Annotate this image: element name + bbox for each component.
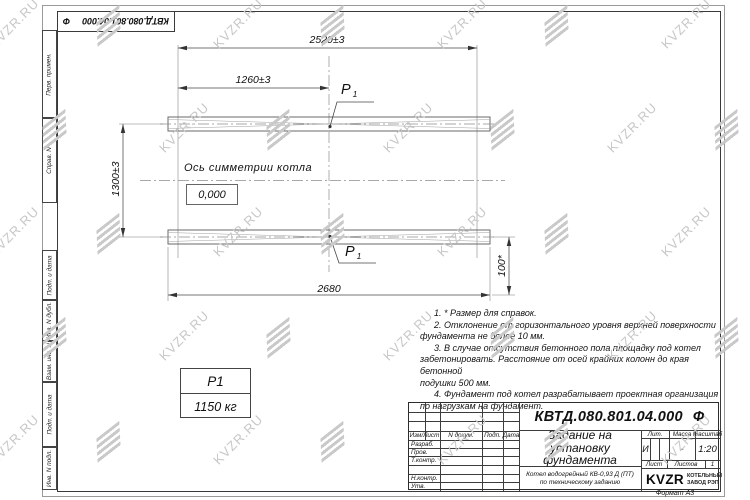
- dim-2520: 2520±3: [287, 34, 367, 46]
- tb-row-tkontr: Т.контр.: [409, 456, 440, 465]
- tb-sheet-label: Лист: [641, 460, 667, 468]
- tb-header-data: Дата: [503, 431, 519, 440]
- tb-product: Котел водогрейный КВ-0,93 Д (ПТ) по техн…: [519, 466, 641, 491]
- tb-row-nkontr: Н.контр.: [409, 474, 440, 482]
- note-line: 1. * Размер для справок.: [420, 308, 722, 320]
- symmetry-axis-label: Ось симметрии котла: [184, 162, 312, 174]
- tb-lit-label: Лит.: [641, 430, 669, 438]
- tb-header-izm-list: Изм/Лист: [409, 431, 440, 440]
- tb-mass-value: -: [669, 438, 695, 460]
- title-block: Изм/Лист N докум. Подп. Дата Разраб. Про…: [408, 402, 719, 490]
- tb-row-prov: Пров.: [409, 448, 440, 456]
- tb-scale-value: 1:20: [695, 438, 720, 460]
- dim-1260: 1260±3: [213, 74, 293, 86]
- dim-100: 100*: [496, 243, 508, 289]
- company-name: КОТЕЛЬНЫЙ ЗАВОД РЭП: [687, 473, 722, 486]
- format-label: Формат А3: [630, 490, 720, 497]
- load-label-bottom: P1: [345, 244, 359, 260]
- tb-header-n-dokum: N докум.: [440, 431, 482, 440]
- tb-doc-title: Задание на установку фундамента: [519, 430, 641, 466]
- load-table: P1 1150 кг: [180, 368, 251, 418]
- load-label-top: P1: [341, 82, 355, 98]
- tb-row-utv: Утв.: [409, 482, 440, 491]
- tb-row-razrab: Разраб.: [409, 440, 440, 448]
- tb-scale-label: Масштаб: [695, 430, 720, 438]
- tb-lit-value: И: [641, 438, 650, 460]
- level-mark: 0,000: [186, 184, 238, 205]
- note-line: 2. Отклонение от горизонтального уровня …: [420, 320, 722, 332]
- note-line: 4. Фундамент под котел разрабатывает про…: [420, 389, 722, 401]
- tb-header-podp: Подп.: [482, 431, 503, 440]
- note-line: забетонировать. Расстояние от осей крайн…: [420, 354, 722, 377]
- load-table-symbol: P1: [181, 369, 250, 394]
- drawing-sheet: КВТД.080.801.04.000 Ф Перв. примен. Спра…: [0, 0, 750, 500]
- technical-notes: 1. * Размер для справок. 2. Отклонение о…: [420, 308, 722, 412]
- tb-mass-label: Масса: [669, 430, 695, 438]
- tb-sheets-value: 1: [705, 460, 720, 468]
- note-line: 3. В случае отсутствия бетонного пола пл…: [420, 343, 722, 355]
- tb-sheets-label: Листов: [667, 460, 705, 468]
- dim-1300: 1300±3: [110, 154, 122, 204]
- load-table-value: 1150 кг: [181, 394, 250, 419]
- tb-designation: КВТД.080.801.04.000 Ф: [519, 403, 720, 430]
- dim-2680: 2680: [299, 283, 359, 295]
- kvzr-logo-text: KVZR: [646, 472, 684, 487]
- note-line: фундамента не более 10 мм.: [420, 331, 722, 343]
- note-line: подушки 500 мм.: [420, 378, 722, 390]
- tb-company: KVZR КОТЕЛЬНЫЙ ЗАВОД РЭП: [641, 468, 720, 491]
